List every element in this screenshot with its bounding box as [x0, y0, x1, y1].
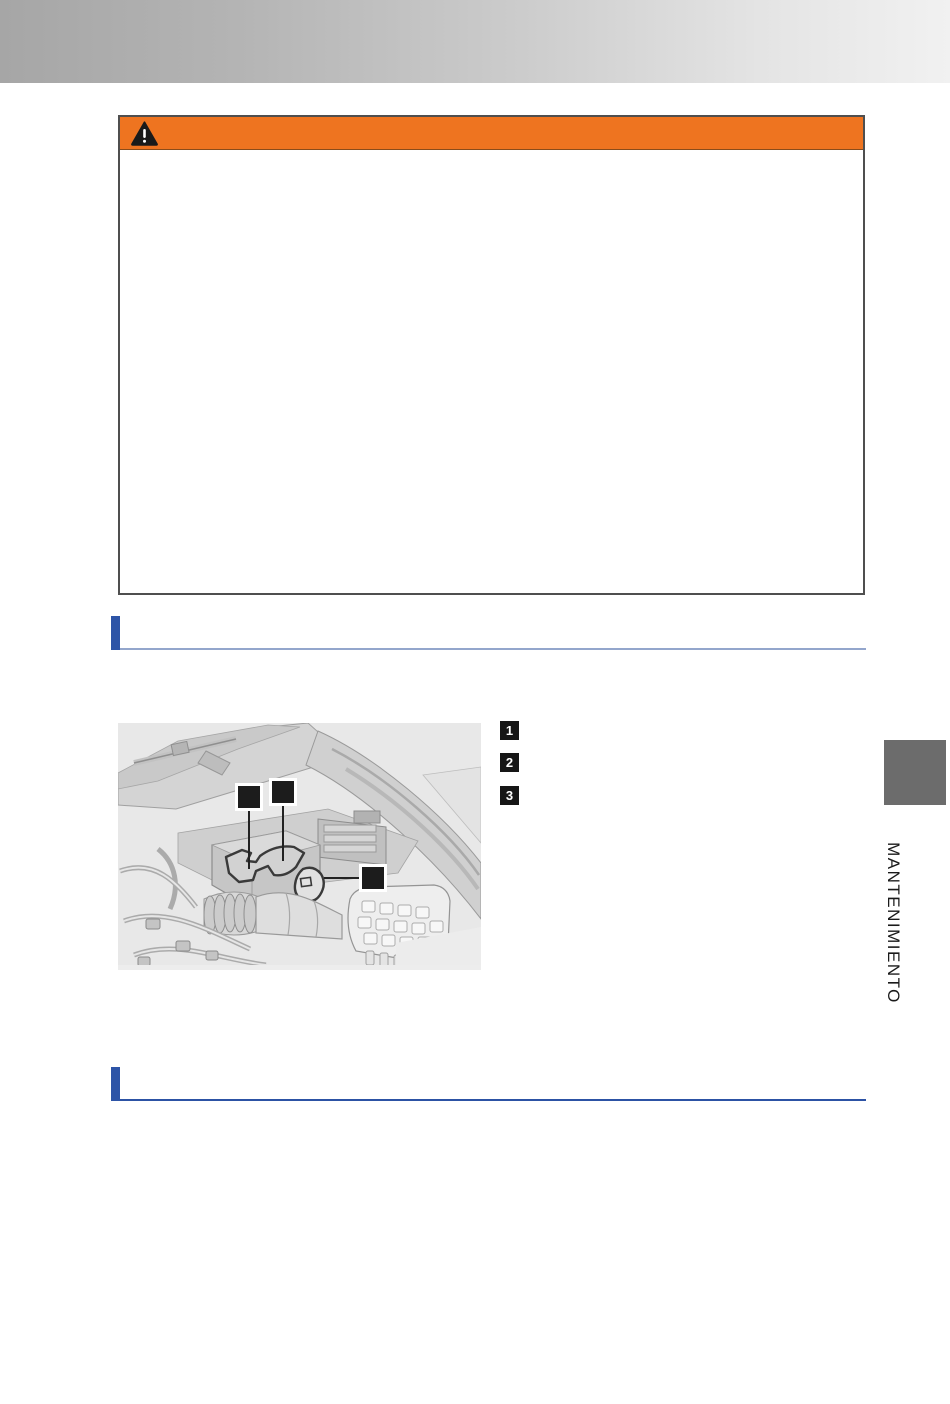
section-divider-1-bar [111, 616, 120, 650]
warning-header [120, 117, 863, 150]
chapter-tab [884, 740, 946, 805]
callout-marker-1 [235, 783, 263, 811]
chapter-label-vertical: MANTENIMIENTO [881, 813, 903, 1033]
section-divider-2 [111, 1067, 866, 1103]
warning-body [120, 150, 863, 592]
legend-marker-3: 3 [500, 786, 519, 805]
page-header-band [0, 0, 950, 83]
section-divider-2-line [120, 1099, 866, 1101]
section-divider-2-bar [111, 1067, 120, 1101]
engine-compartment-illustration [118, 723, 481, 970]
legend-marker-2: 2 [500, 753, 519, 772]
callout-marker-2 [269, 778, 297, 806]
manual-page: { "document": { "side_tab": { "label": "… [0, 0, 950, 1404]
section-divider-1 [111, 616, 866, 652]
warning-box [118, 115, 865, 595]
section-divider-1-line [120, 648, 866, 650]
legend-marker-1: 1 [500, 721, 519, 740]
engine-compartment-figure [118, 723, 481, 970]
warning-triangle-icon [131, 121, 158, 146]
callout-marker-3 [359, 864, 387, 892]
